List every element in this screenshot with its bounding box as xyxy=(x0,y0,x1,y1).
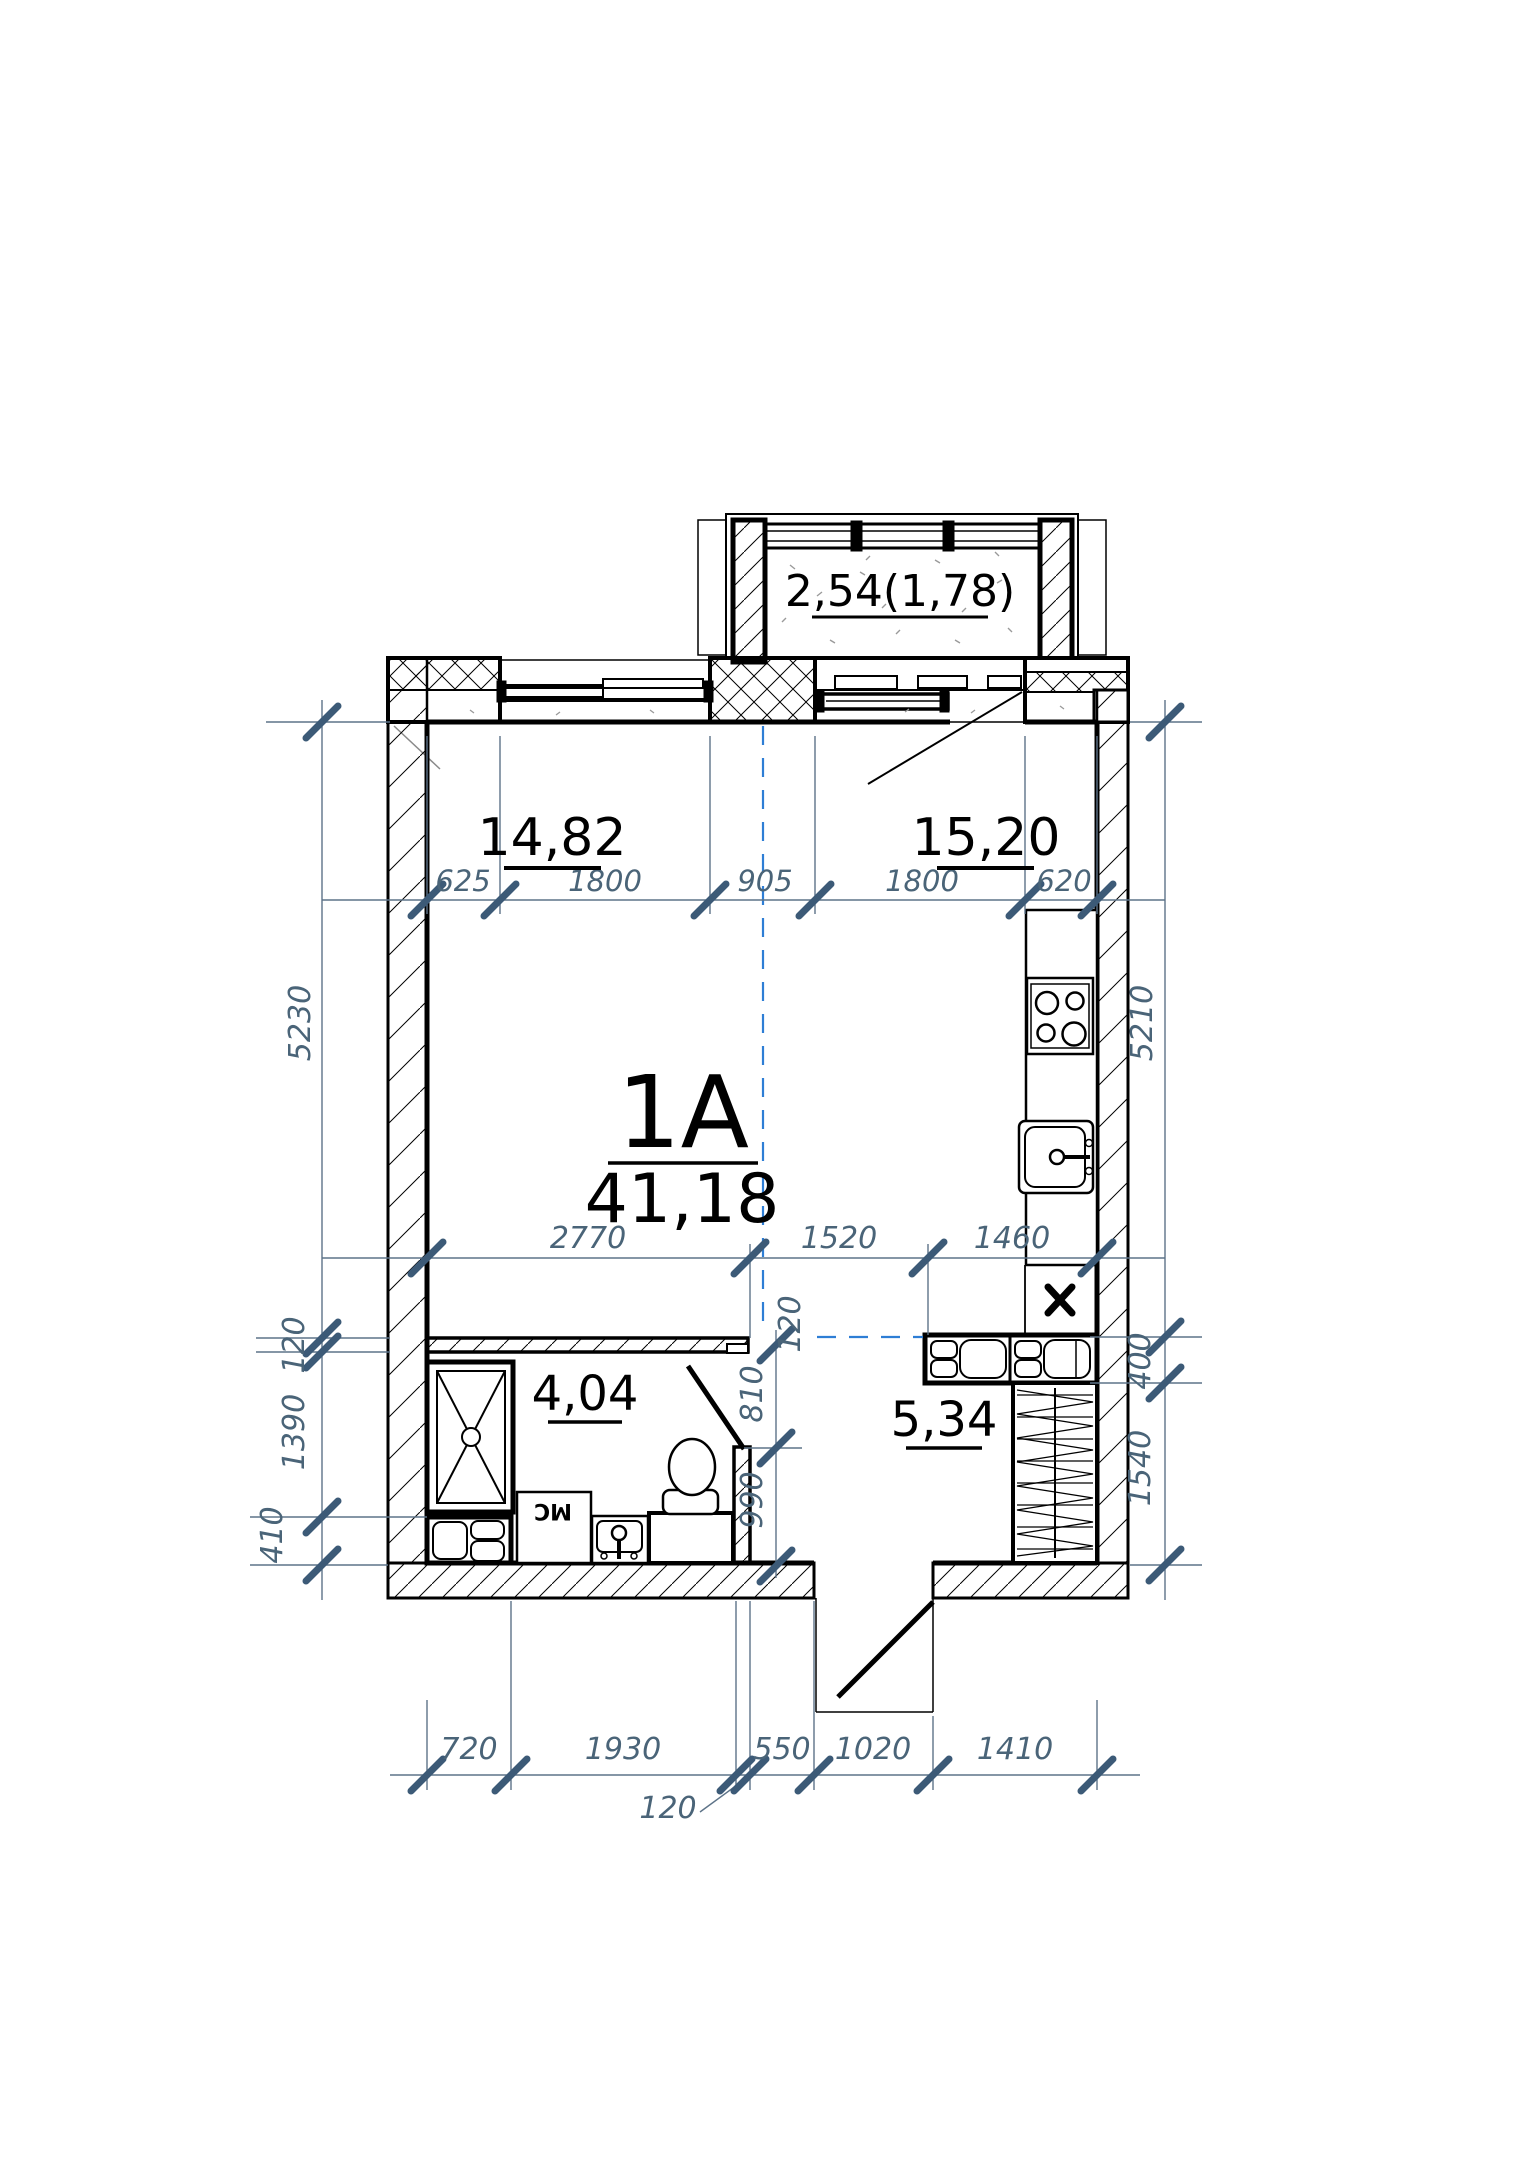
dim-left-wall: 120 xyxy=(277,1316,312,1373)
dim-bottom-3: 1020 xyxy=(835,1732,911,1767)
dimensions-bottom: 720 1930 550 1020 1410 120 xyxy=(390,1601,1140,1826)
dim-right-upper: 400 xyxy=(1123,1332,1158,1389)
dim-bottom-2: 550 xyxy=(753,1732,810,1767)
left-wall xyxy=(388,658,427,1598)
dim-left-room-height: 5230 xyxy=(283,985,318,1061)
bottom-wall xyxy=(388,1563,1128,1712)
dim-top-0: 625 xyxy=(435,864,490,898)
dim-bottom-4: 1410 xyxy=(977,1732,1053,1767)
dim-left-lower: 410 xyxy=(255,1506,290,1563)
dim-top-2: 905 xyxy=(737,864,792,898)
dim-mid-1: 1520 xyxy=(801,1221,877,1256)
dim-bath-upper: 810 xyxy=(735,1365,770,1422)
dim-bottom-callout: 120 xyxy=(639,1791,696,1826)
kitchen-area-label: 15,20 xyxy=(912,808,1061,868)
wardrobe xyxy=(1013,1383,1097,1563)
top-wall xyxy=(388,658,1128,784)
balcony-door-unit xyxy=(815,658,1025,712)
living-room-window xyxy=(497,660,713,702)
balcony-area-label: 2,54(1,78) xyxy=(785,566,1015,617)
total-area-label: 41,18 xyxy=(585,1160,780,1239)
ventilation-icon xyxy=(1048,1287,1072,1313)
balcony-left-post xyxy=(733,520,765,662)
dim-bath-lower: 990 xyxy=(735,1471,770,1528)
entrance-door-leaf xyxy=(838,1602,933,1697)
stove xyxy=(1027,978,1093,1054)
hallway-area-label: 5,34 xyxy=(891,1392,998,1448)
kitchen-sink xyxy=(1019,1121,1093,1193)
entrance-door xyxy=(816,1598,933,1712)
dim-right-room-height: 5210 xyxy=(1125,985,1160,1061)
toilet xyxy=(649,1439,733,1563)
bathroom-partition xyxy=(427,1338,748,1352)
unit-id-label: 1A xyxy=(617,1054,749,1171)
dim-left-bath: 1390 xyxy=(277,1394,312,1470)
bathroom-sink xyxy=(592,1516,648,1563)
living-room-area-label: 14,82 xyxy=(478,808,627,868)
balcony-right-wing xyxy=(1078,520,1106,655)
dim-bottom-1: 1930 xyxy=(585,1732,661,1767)
floor-plan-svg: 625 1800 905 1800 620 2770 1520 1460 xyxy=(0,0,1539,2176)
washing-machine-label: МС xyxy=(534,1498,572,1523)
shoe-cabinet xyxy=(925,1335,1097,1383)
dim-right-lower: 1540 xyxy=(1123,1430,1158,1506)
balcony-left-wing xyxy=(698,520,726,655)
dim-top-4: 620 xyxy=(1036,864,1091,898)
dim-bath-wall: 120 xyxy=(773,1295,808,1352)
dim-mid-2: 1460 xyxy=(974,1221,1050,1256)
dim-bottom-0: 720 xyxy=(440,1732,497,1767)
laundry-unit xyxy=(427,1517,511,1563)
bathroom-area-label: 4,04 xyxy=(532,1366,639,1422)
floor-plan-page: 625 1800 905 1800 620 2770 1520 1460 xyxy=(0,0,1539,2176)
balcony-right-post xyxy=(1040,520,1072,662)
shower-tray xyxy=(427,1362,513,1512)
